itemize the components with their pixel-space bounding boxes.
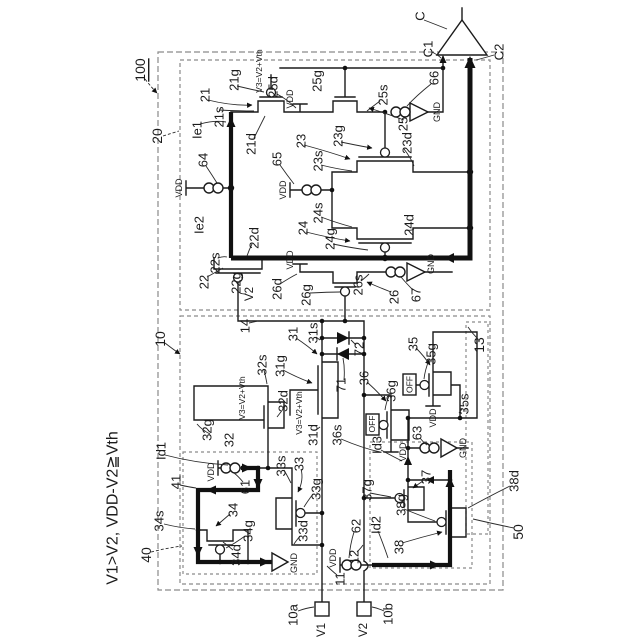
- label-ref-Ie2: Ie2: [192, 216, 207, 234]
- label-ref-C2: C2: [492, 44, 507, 61]
- label-ref-13: 13: [471, 337, 487, 353]
- label-vdd-65: VDD: [278, 180, 288, 200]
- label-ref-38g: 38g: [394, 494, 409, 516]
- label-ref-Id2: Id2: [369, 516, 384, 534]
- label-ref-C: C: [413, 11, 428, 20]
- label-ref-26g: 26g: [299, 284, 314, 306]
- label-gnd-63: GND: [458, 438, 468, 459]
- label-ref-31g: 31g: [273, 355, 288, 377]
- label-ref-33d: 33d: [296, 520, 311, 542]
- label-ref-50: 50: [510, 524, 526, 540]
- label-ref-37: 37: [419, 470, 434, 484]
- label-term-V1: V1: [316, 623, 328, 637]
- label-ref-21: 21: [198, 88, 213, 102]
- label-ref-66: 66: [427, 71, 442, 85]
- label-ref-64: 64: [196, 153, 211, 167]
- label-ref-Id3: Id3: [370, 436, 385, 454]
- label-state-off-35: OFF: [405, 376, 415, 393]
- label-ref-67: 67: [409, 288, 424, 302]
- label-ref-65: 65: [270, 152, 285, 166]
- label-ref-22d: 22d: [247, 227, 262, 249]
- label-ref-23g: 23g: [331, 125, 346, 147]
- label-vdd-61: VDD: [206, 462, 216, 482]
- label-ref-72: 72: [352, 342, 367, 356]
- label-ref-20: 20: [149, 128, 165, 144]
- input-terminals: [315, 602, 371, 616]
- label-ref-25: 25: [396, 117, 411, 131]
- label-ref-10a: 10a: [286, 603, 301, 625]
- label-ref-35s: 35s: [457, 393, 472, 414]
- arrow-Ie2-left: [444, 253, 454, 263]
- label-gnd-40: GND: [289, 553, 299, 574]
- label-ref-34s: 34s: [152, 510, 167, 531]
- label-ref-33s: 33s: [274, 455, 289, 476]
- label-net-V2: V2: [244, 287, 256, 301]
- label-ref-34: 34: [226, 503, 241, 517]
- label-vdd-26: VDD: [285, 250, 295, 270]
- label-ref-25d: 25d: [266, 76, 281, 98]
- label-ref-36g: 36g: [384, 380, 399, 402]
- label-vdd-64: VDD: [174, 178, 184, 198]
- label-ref-22g: 22g: [229, 272, 244, 294]
- label-gnd-67: GND: [426, 254, 436, 275]
- label-ref-71: 71: [334, 378, 349, 392]
- label-ref-26d: 26d: [270, 278, 285, 300]
- label-ref-C1: C1: [421, 41, 436, 58]
- diode-72-icon: [337, 332, 349, 344]
- label-ref-Id1: Id1: [154, 442, 169, 460]
- figure-labels: V1>V2, VDD-V2≧Vth1002010405013CC1C266GND…: [105, 11, 527, 637]
- label-v3-31: V3=V2+Vth: [294, 391, 304, 435]
- label-ref-31s: 31s: [306, 322, 321, 343]
- label-ref-31: 31: [286, 327, 301, 341]
- label-term-V2: V2: [358, 623, 370, 637]
- arrow-Id1-right: [242, 464, 252, 473]
- label-ref-38: 38: [392, 540, 407, 554]
- label-ref-25g: 25g: [310, 70, 325, 92]
- label-vdd-25: VDD: [285, 89, 295, 109]
- arrow-Id1-down1: [254, 479, 263, 489]
- label-ref-62: 62: [349, 519, 364, 533]
- arrow-C1-up: [440, 55, 447, 63]
- label-ref-21s: 21s: [212, 106, 227, 127]
- buffer-66-icon: [410, 103, 428, 121]
- label-ref-36: 36: [357, 371, 372, 385]
- label-vdd-36: VDD: [398, 442, 408, 462]
- buffer-67-icon: [407, 263, 425, 281]
- terminal-10b-V2: [357, 602, 371, 616]
- label-ref-32d: 32d: [276, 390, 291, 412]
- label-ref-35: 35: [406, 337, 421, 351]
- label-gnd-66: GND: [432, 102, 442, 123]
- label-ref-24g: 24g: [323, 228, 338, 250]
- oscillation-element: [437, 20, 487, 55]
- label-ref-100: 100: [132, 58, 148, 82]
- buffer-40-icon: [272, 553, 288, 571]
- label-ref-40: 40: [138, 547, 154, 563]
- label-ref-31d: 31d: [306, 424, 321, 446]
- label-ref-22: 22: [197, 275, 212, 289]
- label-ref-41: 41: [169, 475, 184, 489]
- label-vdd-35: VDD: [428, 408, 438, 428]
- label-state-off-36: OFF: [367, 416, 377, 433]
- label-ref-32: 32: [222, 433, 237, 447]
- label-ref-24d: 24d: [402, 214, 417, 236]
- path-Id2: [372, 470, 450, 565]
- label-ref-24s: 24s: [311, 202, 326, 223]
- label-vdd-62: VDD: [328, 548, 338, 568]
- crystal-triangle-icon: [437, 20, 487, 55]
- label-ref-63: 63: [410, 426, 425, 440]
- label-ref-37g: 37g: [360, 479, 375, 501]
- label-ref-23s: 23s: [311, 150, 326, 171]
- arrow-Id1-right2: [260, 558, 270, 567]
- label-ref-10b: 10b: [381, 603, 396, 625]
- arrow-Ie1-up: [227, 117, 236, 127]
- label-ref-25s: 25s: [376, 84, 391, 105]
- label-ref-33g: 33g: [309, 478, 324, 500]
- terminal-10a-V1: [315, 602, 329, 616]
- label-ref-38d: 38d: [507, 470, 522, 492]
- label-ref-10: 10: [152, 331, 168, 347]
- label-ref-11: 11: [333, 572, 348, 586]
- label-ref-34d: 34d: [229, 544, 244, 566]
- label-ref-Ie1: Ie1: [190, 121, 205, 139]
- label-ref-32g: 32g: [200, 419, 215, 441]
- label-ref-22s: 22s: [208, 252, 223, 273]
- label-condition: V1>V2, VDD-V2≧Vth: [105, 431, 122, 584]
- label-ref-21d: 21d: [244, 133, 259, 155]
- arrow-Id1-down2: [194, 547, 203, 557]
- label-ref-12: 12: [347, 550, 362, 564]
- oscillator-circuit-diagram: V1>V2, VDD-V2≧Vth1002010405013CC1C266GND…: [0, 0, 640, 640]
- label-ref-21g: 21g: [227, 69, 242, 91]
- label-ref-32s: 32s: [255, 354, 270, 375]
- label-ref-24: 24: [296, 221, 311, 235]
- patent-figure-page: V1>V2, VDD-V2≧Vth1002010405013CC1C266GND…: [0, 0, 640, 640]
- label-ref-26: 26: [387, 290, 402, 304]
- label-ref-26s: 26s: [351, 274, 366, 295]
- label-ref-35g: 35g: [424, 343, 439, 365]
- label-v3-32: V3=V2+Vth: [237, 376, 247, 420]
- arrow-C2-up: [465, 56, 476, 68]
- label-v3-21: V3=V2+Vth: [254, 49, 264, 93]
- arrow-Id1-left: [206, 486, 216, 495]
- label-ref-36s: 36s: [330, 424, 345, 445]
- label-ref-33: 33: [292, 457, 307, 471]
- label-ref-14: 14: [238, 319, 253, 333]
- diode-pair: [337, 332, 349, 360]
- label-ref-23: 23: [294, 134, 309, 148]
- label-ref-34g: 34g: [241, 520, 256, 542]
- label-ref-61: 61: [238, 480, 253, 494]
- label-ref-23d: 23d: [400, 132, 415, 154]
